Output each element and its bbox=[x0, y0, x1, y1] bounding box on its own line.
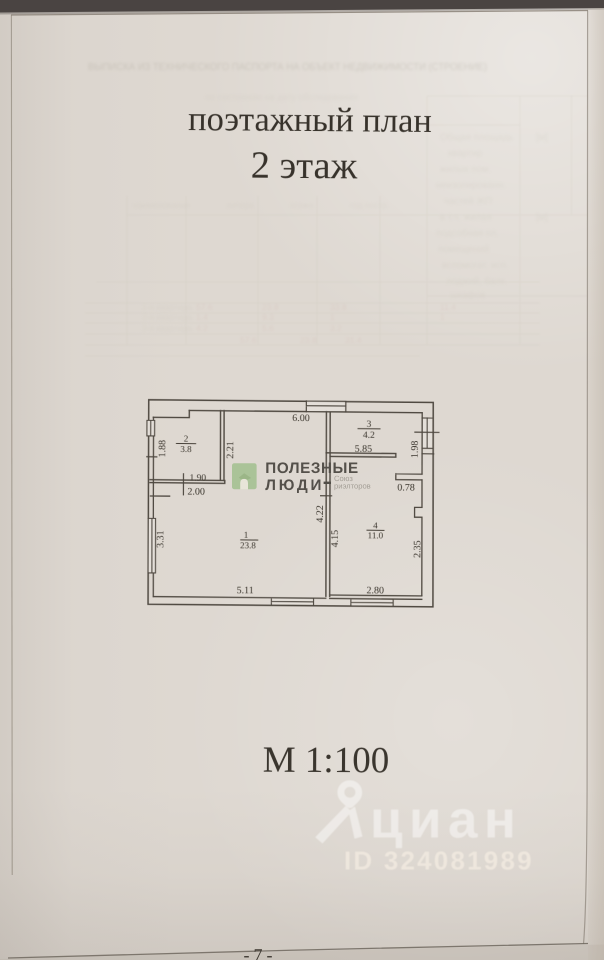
svg-text:ID 324081989: ID 324081989 bbox=[344, 846, 534, 876]
svg-text:2: 2 bbox=[184, 434, 189, 444]
svg-text:5.11: 5.11 bbox=[237, 585, 254, 596]
svg-text:2.35: 2.35 bbox=[412, 540, 423, 558]
svg-text:ЛЮДИ: ЛЮДИ bbox=[265, 477, 324, 494]
svg-text:4: 4 bbox=[373, 521, 378, 531]
svg-text:1.90: 1.90 bbox=[189, 474, 206, 484]
svg-text:2.00: 2.00 bbox=[187, 486, 205, 497]
svg-text:6.00: 6.00 bbox=[292, 413, 310, 424]
svg-text:23.8: 23.8 bbox=[240, 540, 256, 550]
svg-text:3.31: 3.31 bbox=[155, 530, 166, 548]
svg-text:1.88: 1.88 bbox=[157, 440, 168, 458]
svg-text:4.2: 4.2 bbox=[363, 431, 375, 441]
svg-text:5.85: 5.85 bbox=[355, 444, 373, 455]
svg-text:2.80: 2.80 bbox=[366, 585, 384, 596]
svg-text:1: 1 bbox=[244, 530, 249, 540]
svg-text:11.0: 11.0 bbox=[368, 530, 384, 540]
svg-text:3: 3 bbox=[367, 420, 372, 430]
svg-text:1.98: 1.98 bbox=[410, 441, 421, 459]
svg-text:0.78: 0.78 bbox=[397, 482, 415, 493]
svg-text:4.22: 4.22 bbox=[315, 505, 326, 523]
svg-text:3.8: 3.8 bbox=[180, 444, 192, 454]
svg-text:4.15: 4.15 bbox=[330, 530, 341, 548]
svg-text:риэлторов: риэлторов bbox=[334, 481, 371, 490]
svg-text:циан: циан bbox=[370, 791, 522, 850]
